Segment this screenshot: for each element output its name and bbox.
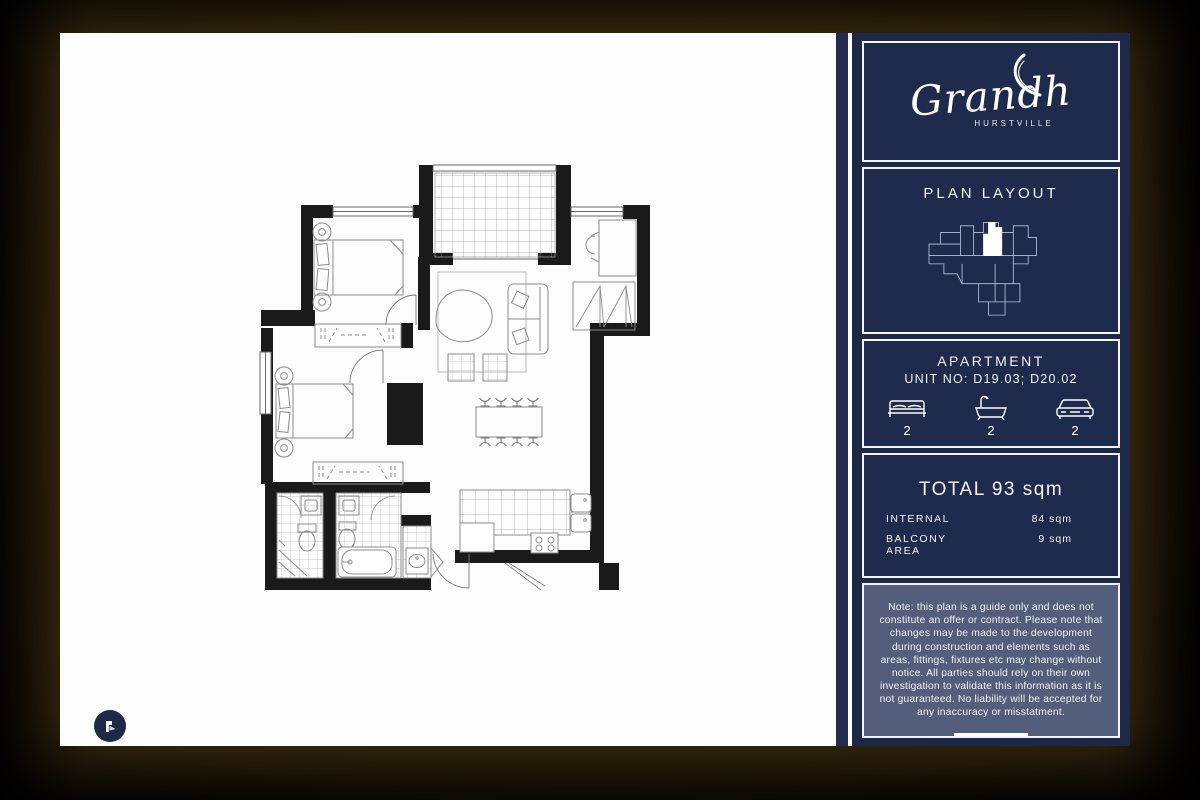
area-row-internal: INTERNAL 84 sqm [864, 513, 1118, 525]
internal-value: 84 sqm [982, 513, 1072, 525]
bedroom-count: 2 [903, 423, 910, 438]
balcony-floor [435, 173, 555, 257]
feature-cars: 2 [1054, 395, 1096, 438]
disclaimer-text: Note: this plan is a guide only and does… [876, 601, 1106, 720]
bed-icon [886, 395, 928, 421]
feature-bedrooms: 2 [886, 395, 928, 438]
bathroom-count: 2 [987, 423, 994, 438]
bathrooms [277, 493, 443, 578]
plan-layout-panel: PLAN LAYOUT [862, 167, 1120, 334]
internal-label: INTERNAL [864, 513, 982, 525]
developer-logo [94, 710, 126, 742]
apartment-panel: APARTMENT UNIT NO: D19.03; D20.02 2 [862, 339, 1120, 448]
car-icon [1054, 395, 1096, 421]
brand-name: Grandh [909, 70, 1073, 122]
dining-chairs [480, 398, 539, 446]
kitchen [460, 490, 591, 553]
apartment-title: APARTMENT [864, 353, 1118, 369]
note-divider [954, 733, 1028, 736]
apartment-unit: UNIT NO: D19.03; D20.02 [864, 372, 1118, 386]
feature-bathrooms: 2 [970, 395, 1012, 438]
key-plan [896, 206, 1086, 330]
balcony-value: 9 sqm [982, 533, 1072, 557]
page-divider-bar [836, 33, 848, 746]
key-plan-highlight [984, 223, 1002, 256]
note-panel: Note: this plan is a guide only and does… [862, 583, 1120, 738]
area-panel: TOTAL 93 sqm INTERNAL 84 sqm BALCONY ARE… [862, 453, 1120, 578]
floor-plan [255, 110, 665, 590]
car-count: 2 [1071, 423, 1078, 438]
plan-layout-title: PLAN LAYOUT [864, 185, 1118, 202]
developer-logo-icon [101, 717, 119, 735]
logo-panel: Grandh HURSTVILLE [862, 41, 1120, 162]
total-area: TOTAL 93 sqm [864, 479, 1118, 501]
balcony-label: BALCONY AREA [864, 533, 982, 557]
bath-icon [970, 395, 1012, 421]
area-row-balcony: BALCONY AREA 9 sqm [864, 533, 1118, 557]
area-rows: INTERNAL 84 sqm BALCONY AREA 9 sqm [864, 513, 1118, 557]
brochure-page: Grandh HURSTVILLE PLAN LAYOUT APARTMENT … [60, 33, 1130, 746]
stage: Grandh HURSTVILLE PLAN LAYOUT APARTMENT … [0, 0, 1200, 800]
sidebar: Grandh HURSTVILLE PLAN LAYOUT APARTMENT … [852, 33, 1130, 746]
feature-row: 2 2 [864, 395, 1118, 438]
furniture [275, 220, 636, 484]
